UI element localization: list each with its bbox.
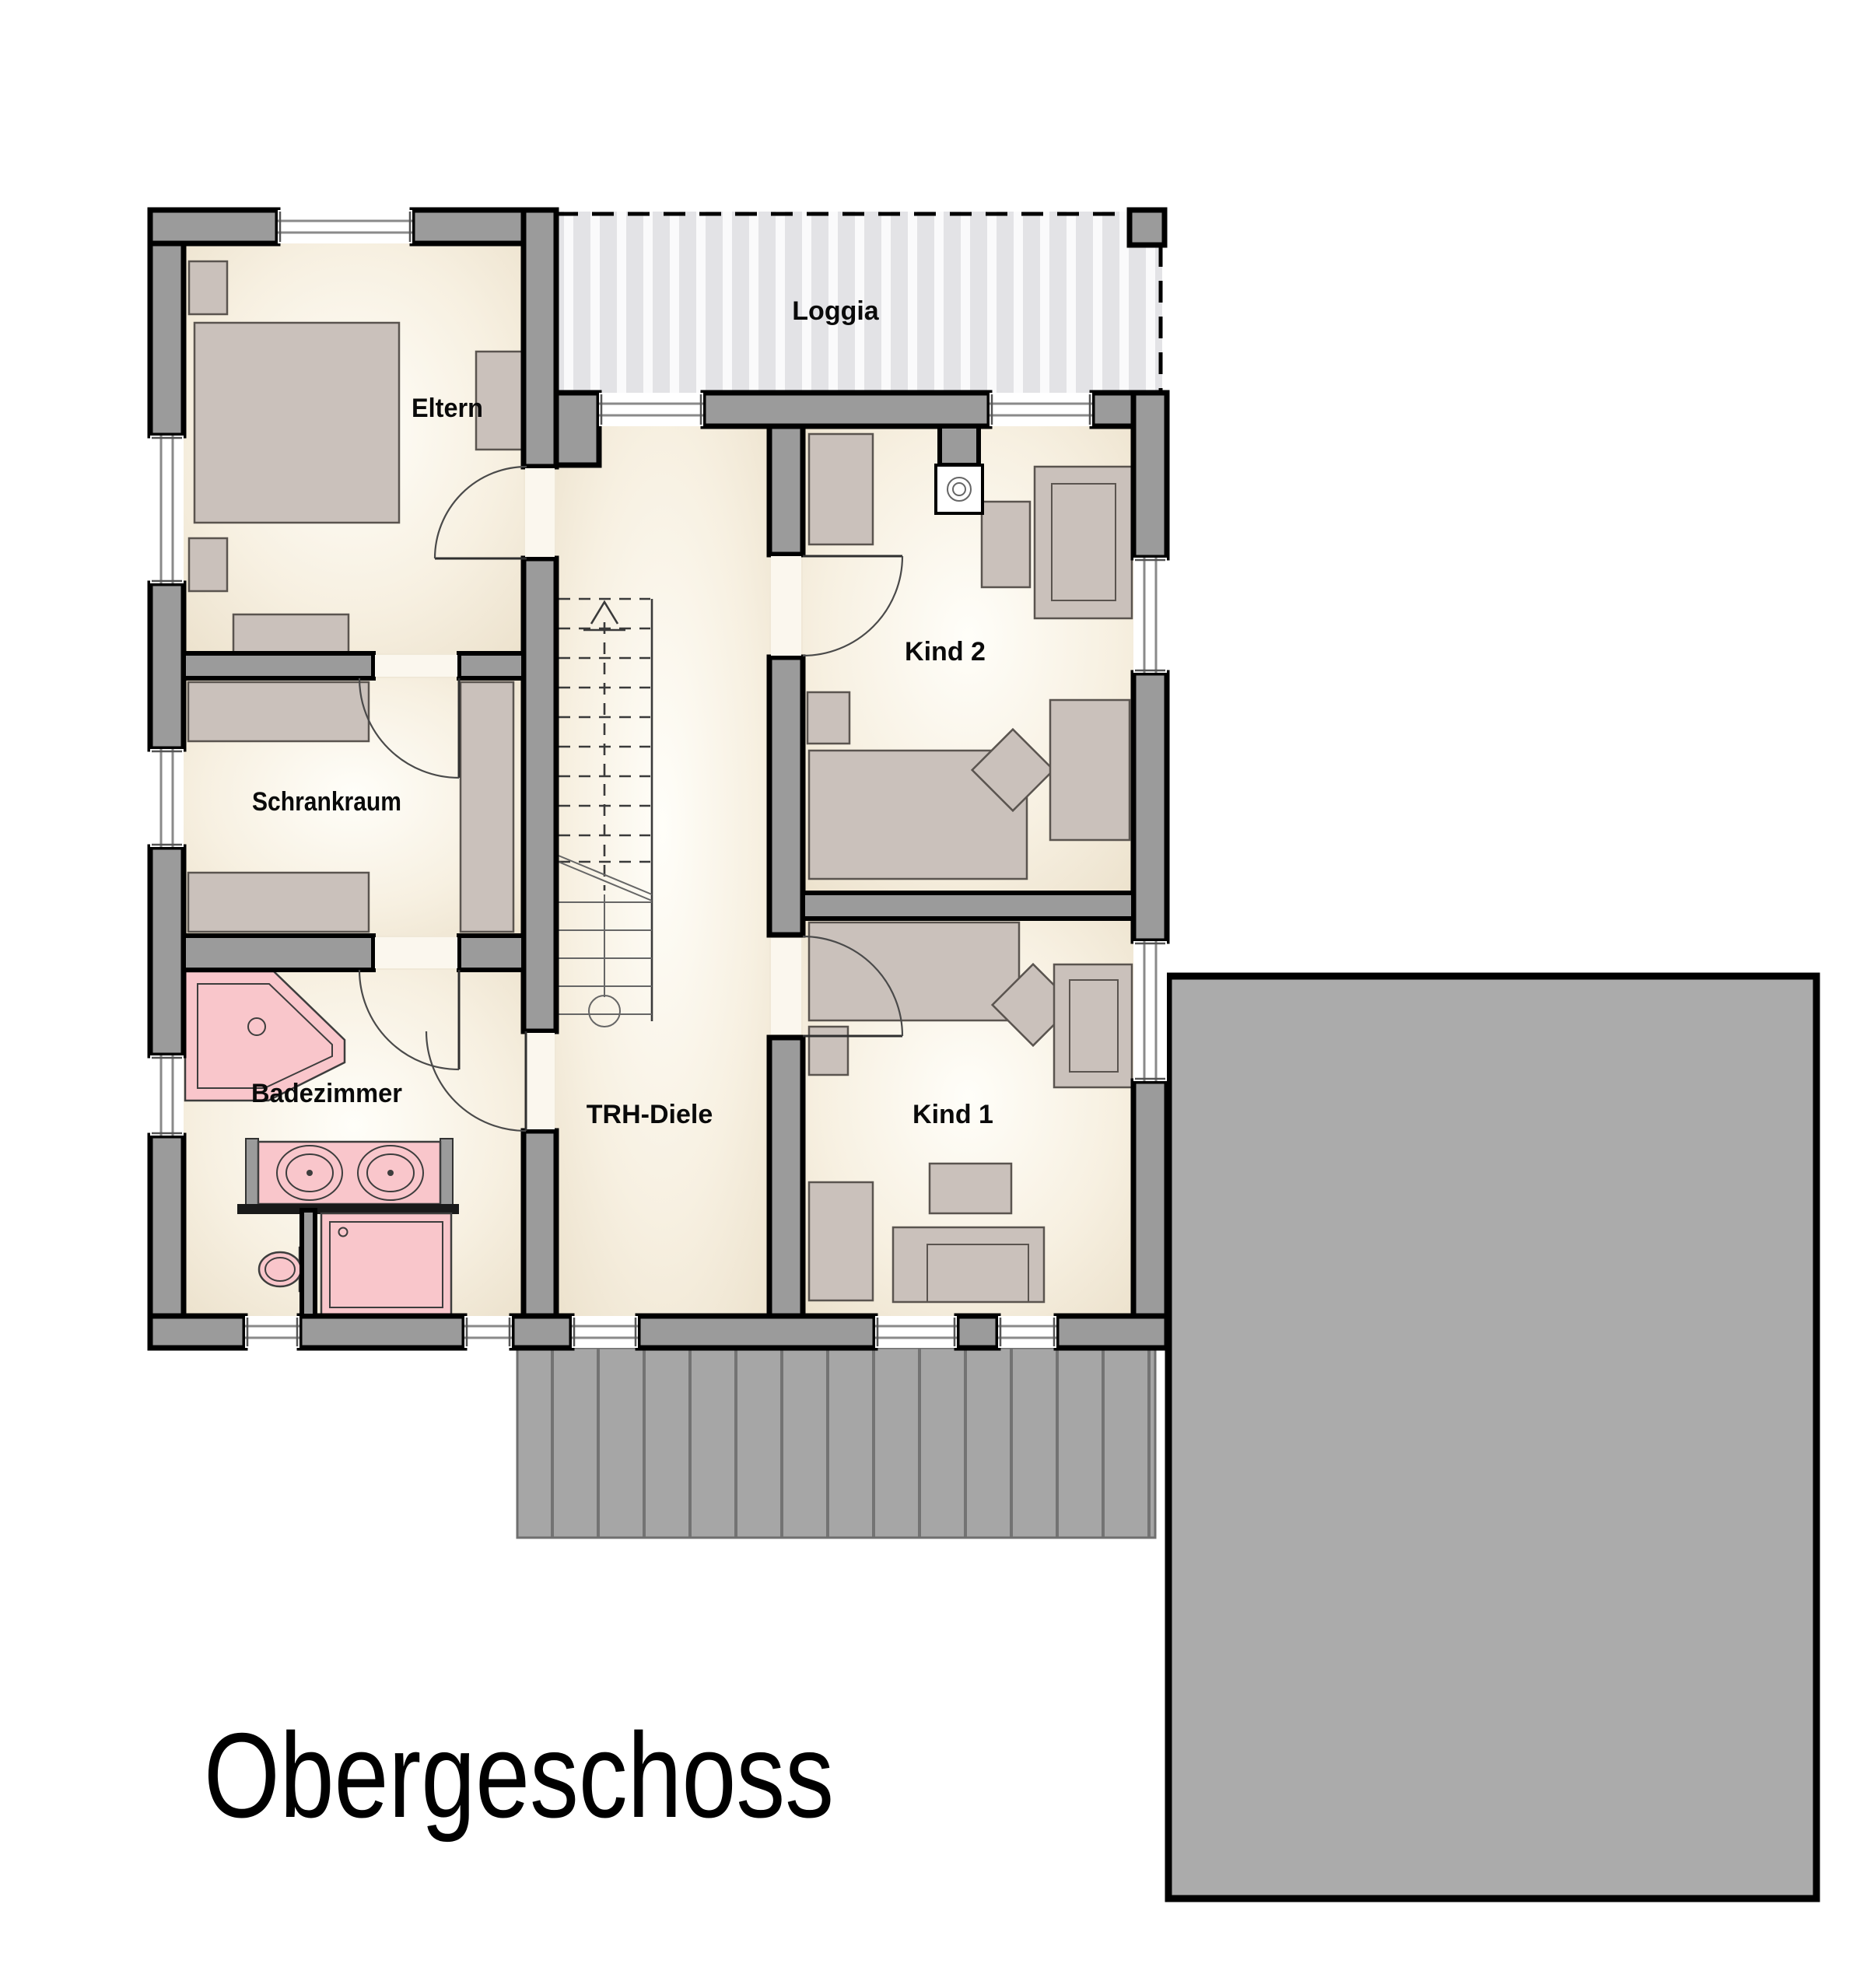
eltern-nightstand-1 [189,261,227,314]
terrace-roof [517,1348,1155,1538]
window-right-kind2 [1133,558,1167,673]
label-trh-diele: TRH-Diele [587,1100,713,1129]
kind2-nightstand [807,692,849,744]
label-badezimmer: Badezimmer [251,1079,402,1108]
chimney-flue-box [936,465,983,513]
kind2-wardrobe [809,434,873,544]
window-bottom-kind1-1 [875,1316,957,1348]
kind1-nightstand [809,1027,848,1075]
eltern-dresser [233,614,349,653]
wall-toilet-partition [302,1210,315,1316]
label-eltern: Eltern [412,394,483,423]
loggia-column [1130,210,1165,245]
wall-right-2 [1133,673,1167,941]
eltern-bed [194,323,399,523]
wall-eltern-schrankraum-1 [184,653,373,678]
eltern-nightstand-2 [189,538,227,591]
kind1-desk [1054,964,1132,1087]
wall-loggia-middle [703,393,990,426]
wall-trh-kind-3 [769,1038,803,1316]
wall-loggia-corner [556,393,599,465]
garage-roof [1168,976,1816,1899]
kind1-table [930,1164,1011,1213]
wall-bottom-5 [957,1316,998,1348]
wall-bottom-1 [150,1316,245,1348]
sink-left-drain [306,1170,313,1176]
window-bottom-trh [572,1316,638,1348]
wall-trh-kind-2 [769,657,803,935]
kind1-bed [809,922,1019,1020]
vanity-panel-left [246,1139,258,1207]
floor-plan-drawing: Eltern Schrankraum Badezimmer TRH-Diele … [0,0,1867,1988]
wall-bottom-2 [299,1316,464,1348]
wall-bottom-6 [1056,1316,1167,1348]
wall-eltern-trh-lower [524,1131,556,1316]
label-kind2: Kind 2 [905,637,986,667]
kind1-sofa [893,1227,1044,1302]
window-right-kind1 [1133,941,1167,1081]
floor-plan-page: Eltern Schrankraum Badezimmer TRH-Diele … [0,0,1867,1988]
kind2-chair [982,502,1030,587]
window-left-schrankraum [150,749,184,847]
window-loggia-trh [599,393,703,426]
window-left-eltern [150,436,184,583]
window-bottom-bad-2 [464,1316,512,1348]
wall-eltern-schrankraum-2 [459,653,524,678]
sink-right-drain [387,1170,394,1176]
wall-trh-kind-1 [769,426,803,555]
wall-loggia-pier [1092,393,1133,426]
vanity-panel-right [440,1139,453,1207]
wall-left-3 [150,847,184,1055]
window-loggia-kind2 [990,393,1092,426]
kind2-armchair [1050,700,1130,840]
wall-eltern-trh-mid [524,558,556,1031]
wall-right-3 [1133,1081,1167,1348]
wall-schrankraum-bad-1 [184,936,373,970]
schrankraum-wardrobe-bottom [188,873,369,932]
wall-schrankraum-bad-2 [459,936,524,970]
window-bottom-bad-1 [245,1316,299,1348]
label-loggia: Loggia [792,296,880,326]
wall-kind1-kind2 [803,893,1133,919]
window-left-bad [150,1055,184,1136]
wall-bottom-4 [638,1316,875,1348]
window-bottom-kind1-2 [998,1316,1056,1348]
window-top-eltern [278,210,412,243]
terrace-roof-area [517,1348,1155,1538]
room-trh-floor [556,426,769,1316]
label-kind1: Kind 1 [912,1100,993,1129]
wall-left-2 [150,583,184,749]
wall-right-1 [1133,393,1167,558]
plan-title: Obergeschoss [204,1708,834,1843]
chimney-block [940,426,979,465]
kind2-desk [1035,467,1132,618]
schrankraum-wardrobe-right [461,682,513,932]
wall-top-1 [150,210,278,243]
schrankraum-wardrobe-top [188,682,369,741]
kind1-wardrobe [809,1182,873,1300]
wall-eltern-trh-upper [524,210,556,467]
chimney-flue [936,465,983,513]
wall-bottom-3 [512,1316,572,1348]
label-schrankraum: Schrankraum [252,787,401,817]
